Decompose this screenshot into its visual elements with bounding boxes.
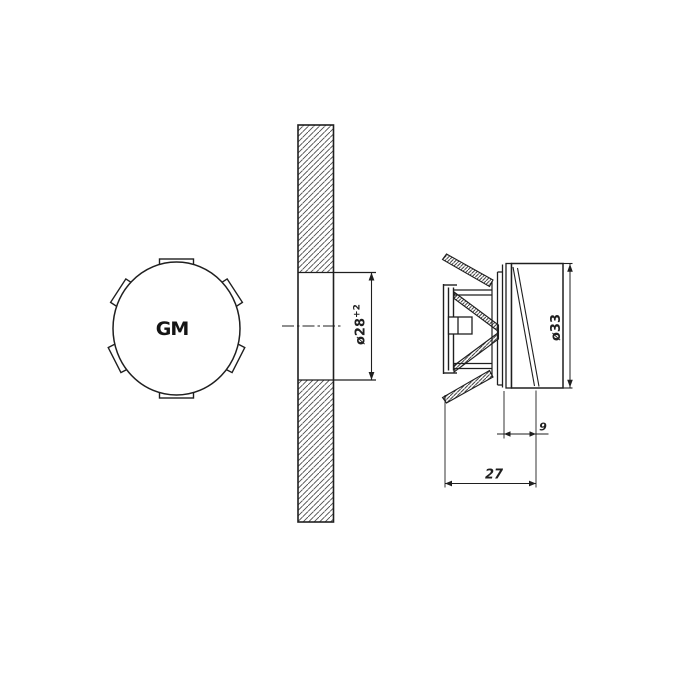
- hole-diameter-label: ø28+2: [353, 304, 369, 345]
- latch-tab: [449, 317, 473, 334]
- arrowhead-down: [369, 372, 375, 380]
- wall-hatch-lower: [298, 380, 334, 522]
- total-depth-label: 27: [485, 468, 504, 483]
- arrowhead-down: [567, 380, 573, 388]
- arrowhead-up: [369, 273, 375, 281]
- logo-mark: GM: [156, 318, 189, 340]
- arrowhead-right: [529, 481, 536, 487]
- spring-arm-bottom: [443, 371, 494, 404]
- arrowhead-left: [445, 481, 452, 487]
- wall-hatch-upper: [298, 125, 334, 273]
- section-view: ø28+2: [282, 125, 376, 522]
- arrowhead-right: [530, 431, 537, 436]
- side-view: ø33 9 27: [443, 254, 573, 488]
- spring-arm-top: [443, 254, 494, 287]
- drawing-canvas: GM ø28+2: [0, 0, 700, 700]
- plate-diameter-label: ø33: [549, 314, 564, 341]
- dimension-total-depth: 27: [445, 468, 536, 487]
- arrowhead-left: [504, 431, 511, 436]
- dimension-protrusion-depth: 9: [497, 421, 549, 437]
- protrusion-depth-label: 9: [539, 421, 547, 434]
- dimension-hole-diameter: ø28+2: [353, 273, 375, 381]
- front-view: GM: [108, 259, 245, 398]
- arrowhead-up: [567, 264, 573, 272]
- technical-drawing: GM ø28+2: [0, 0, 700, 700]
